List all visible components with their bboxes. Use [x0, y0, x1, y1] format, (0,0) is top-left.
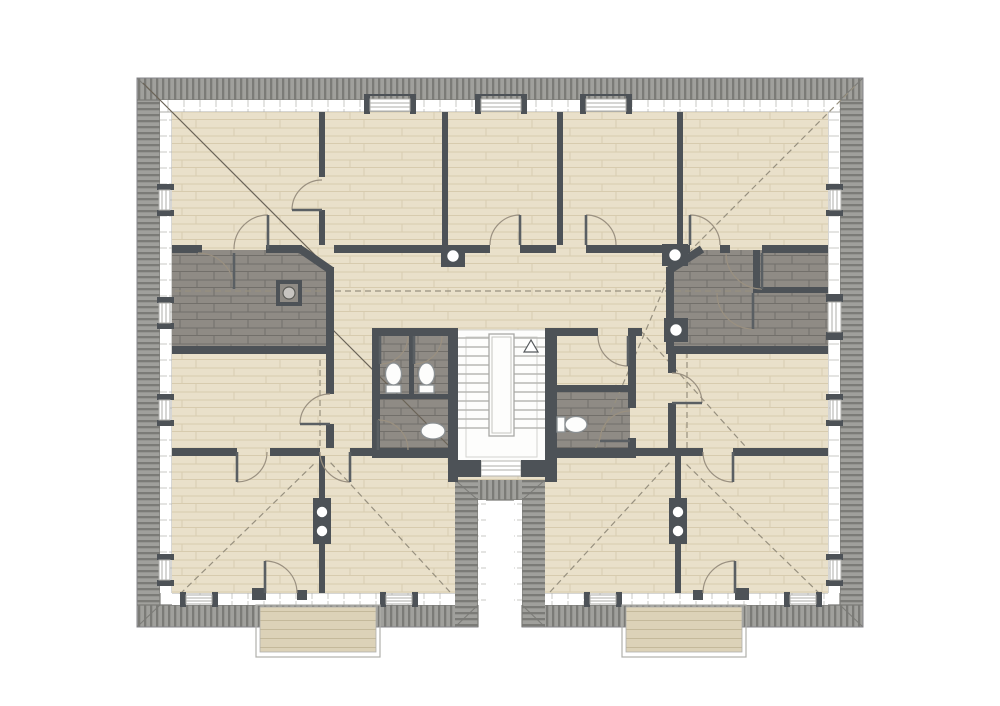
roof-band-left: [137, 100, 160, 627]
column: [669, 249, 682, 262]
balcony-right: [622, 605, 746, 657]
balcony-left: [256, 605, 380, 657]
stair-void: [489, 334, 514, 436]
flue: [672, 525, 684, 537]
toilet: [419, 363, 435, 393]
staircase: [458, 330, 545, 476]
flue: [316, 525, 328, 537]
flue: [672, 506, 684, 518]
roof-band-right: [840, 100, 863, 627]
roof-band-courtyard-left: [455, 480, 478, 627]
terrace-left: [172, 250, 330, 346]
stair-exit-threshold: [481, 461, 521, 476]
flue: [316, 506, 328, 518]
toilet: [386, 363, 402, 393]
column: [447, 250, 460, 263]
toilet: [557, 417, 587, 433]
side-window: [826, 294, 843, 340]
roof-band-top: [137, 78, 863, 100]
column: [670, 324, 683, 337]
roof-band-courtyard-right: [522, 480, 545, 627]
floor-plan-page: [0, 0, 1000, 706]
chimney-terrace: [276, 280, 302, 306]
terrace-right: [670, 250, 828, 346]
floor-plan-drawing: [0, 0, 1000, 706]
sink: [421, 423, 445, 439]
